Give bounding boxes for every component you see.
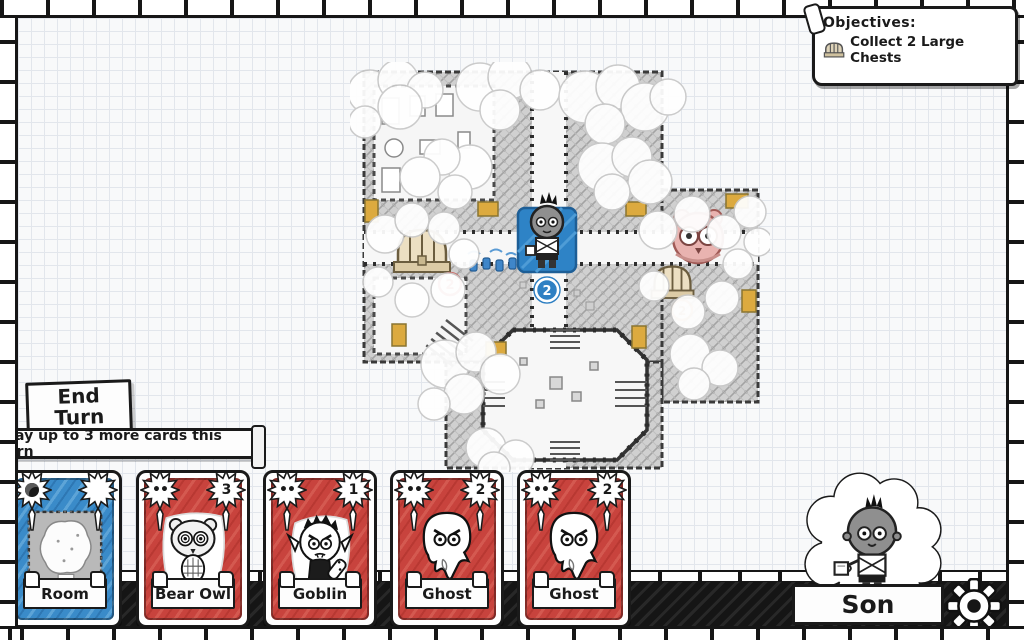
dungeon-map[interactable]: 2 2 bbox=[350, 62, 770, 472]
card-room-left-burst bbox=[12, 472, 52, 534]
card-name-ribbon: Ghost bbox=[532, 578, 616, 609]
card-name-ribbon: Ghost bbox=[405, 578, 489, 609]
card-room-right-burst bbox=[78, 472, 118, 534]
objectives-panel: Objectives: Collect 2 Large Chests bbox=[812, 6, 1018, 86]
svg-text:2: 2 bbox=[542, 284, 551, 299]
attack-dots-icon: •• bbox=[140, 477, 180, 503]
card-bear-owl-cost-burst: 3 bbox=[206, 472, 246, 534]
card-bear-owl-left-burst: •• bbox=[140, 472, 180, 534]
card-name-ribbon: Goblin bbox=[278, 578, 362, 609]
card-name-ribbon: Bear Owl bbox=[151, 578, 235, 609]
attack-dots-icon: •• bbox=[394, 477, 434, 503]
attack-dots-icon: •• bbox=[267, 477, 307, 503]
card-ghost-left-burst: •• bbox=[521, 472, 561, 534]
attack-dots-icon: •• bbox=[521, 477, 561, 503]
card-goblin[interactable]: •• 1 bbox=[263, 470, 377, 628]
brick-border-left bbox=[0, 0, 18, 640]
card-bear-owl[interactable]: •• 3 bbox=[136, 470, 250, 628]
brick-border-bottom bbox=[0, 626, 1024, 640]
dungeon-map-drawing: 2 2 bbox=[350, 62, 770, 472]
card-ghost-1[interactable]: •• 2 Ghost bbox=[390, 470, 504, 628]
card-goblin-left-burst: •• bbox=[267, 472, 307, 534]
card-room[interactable]: Room bbox=[8, 470, 122, 628]
card-goblin-cost-burst: 1 bbox=[333, 472, 373, 534]
player-move-badge: 2 bbox=[534, 277, 560, 303]
game-screen: 2 2 bbox=[0, 0, 1024, 640]
card-ghost-2[interactable]: •• 2 Ghost bbox=[517, 470, 631, 628]
card-ghost-cost-burst: 2 bbox=[587, 472, 627, 534]
map-octagon-room bbox=[483, 330, 647, 460]
hero-nameplate: Son bbox=[792, 584, 944, 625]
card-name-ribbon: Room bbox=[23, 578, 107, 609]
card-ghost-cost-burst: 2 bbox=[460, 472, 500, 534]
room-cost-dot-icon bbox=[25, 483, 39, 497]
objectives-title: Objectives: bbox=[823, 15, 1007, 31]
end-turn-button[interactable]: End Turn bbox=[25, 379, 133, 435]
card-ghost-left-burst: •• bbox=[394, 472, 434, 534]
brick-border-right bbox=[1006, 0, 1024, 640]
large-chest-icon bbox=[823, 40, 845, 60]
objective-label: Collect 2 Large Chests bbox=[850, 34, 1007, 66]
cards-remaining-banner: Play up to 3 more cards this turn bbox=[0, 428, 262, 459]
objective-item: Collect 2 Large Chests bbox=[823, 34, 1007, 66]
